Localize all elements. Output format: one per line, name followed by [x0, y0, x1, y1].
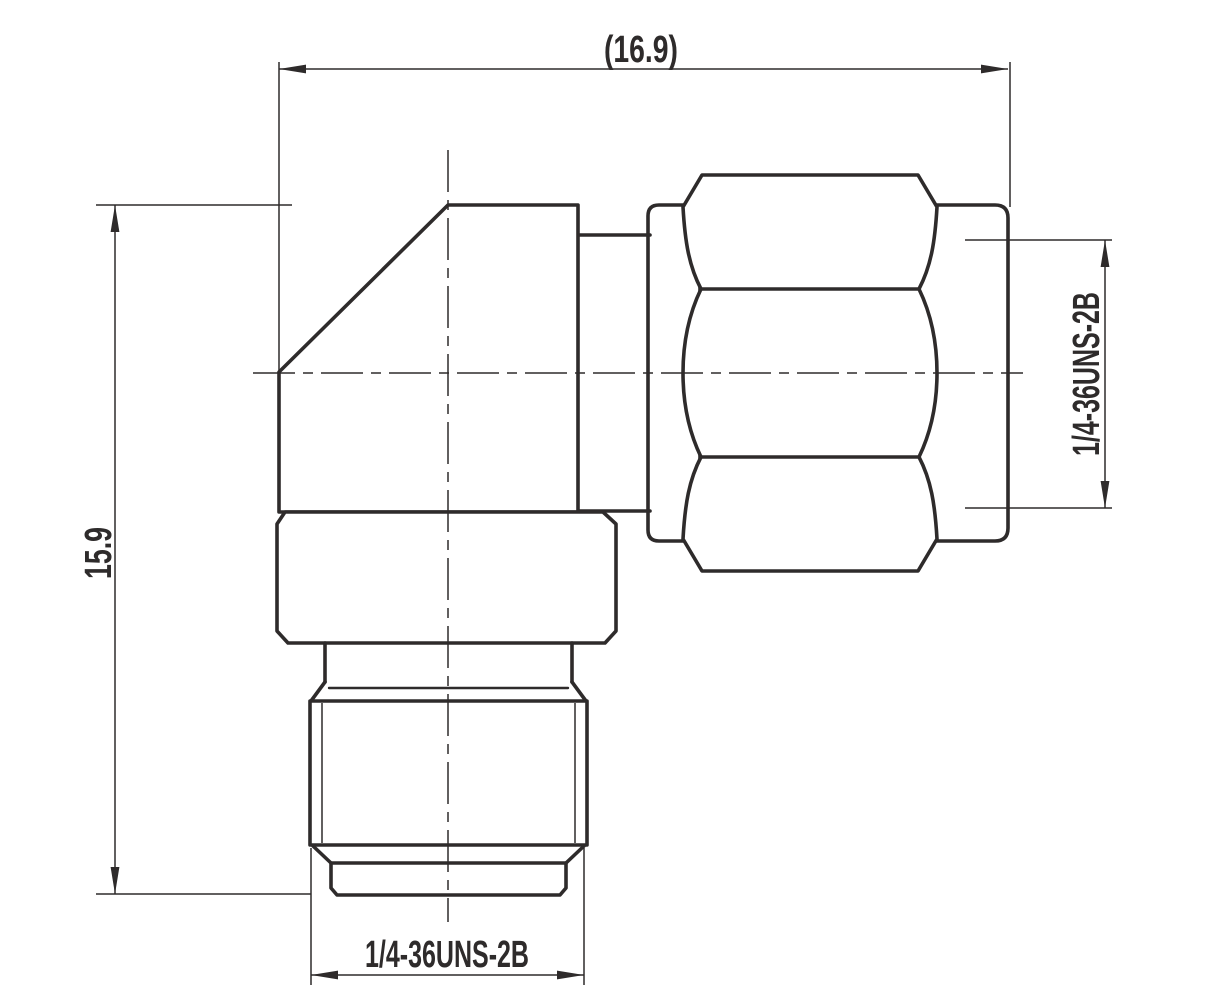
right-angle-adapter-drawing: (16.9) 15.9 1/4-36UNS-2B [0, 0, 1205, 1000]
arrow-down-icon [1101, 481, 1110, 508]
dim-overall-height-label: 15.9 [78, 527, 120, 579]
arrow-left-icon [279, 65, 306, 74]
flange-outline [277, 512, 616, 643]
arrow-up-icon [1101, 240, 1110, 267]
technical-drawing-page: (16.9) 15.9 1/4-36UNS-2B [0, 0, 1205, 1000]
arrow-down-icon [111, 867, 120, 894]
body-outline [279, 205, 578, 512]
dim-right-thread-label: 1/4-36UNS-2B [1066, 292, 1108, 456]
part-outline [277, 175, 1008, 895]
lower-barrel-chamfer-bottom-right [566, 846, 584, 863]
arrow-up-icon [111, 205, 120, 232]
dim-bottom-thread-label: 1/4-36UNS-2B [365, 934, 529, 976]
arrow-left-icon [311, 971, 338, 980]
lower-barrel-chamfer-top-right [572, 682, 586, 701]
dim-overall-width-label: (16.9) [604, 29, 678, 71]
arrow-right-icon [557, 971, 584, 980]
lower-barrel-chamfer-bottom-left [313, 846, 331, 863]
arrow-right-icon [981, 65, 1008, 74]
lower-barrel-chamfer-top-left [311, 682, 325, 701]
